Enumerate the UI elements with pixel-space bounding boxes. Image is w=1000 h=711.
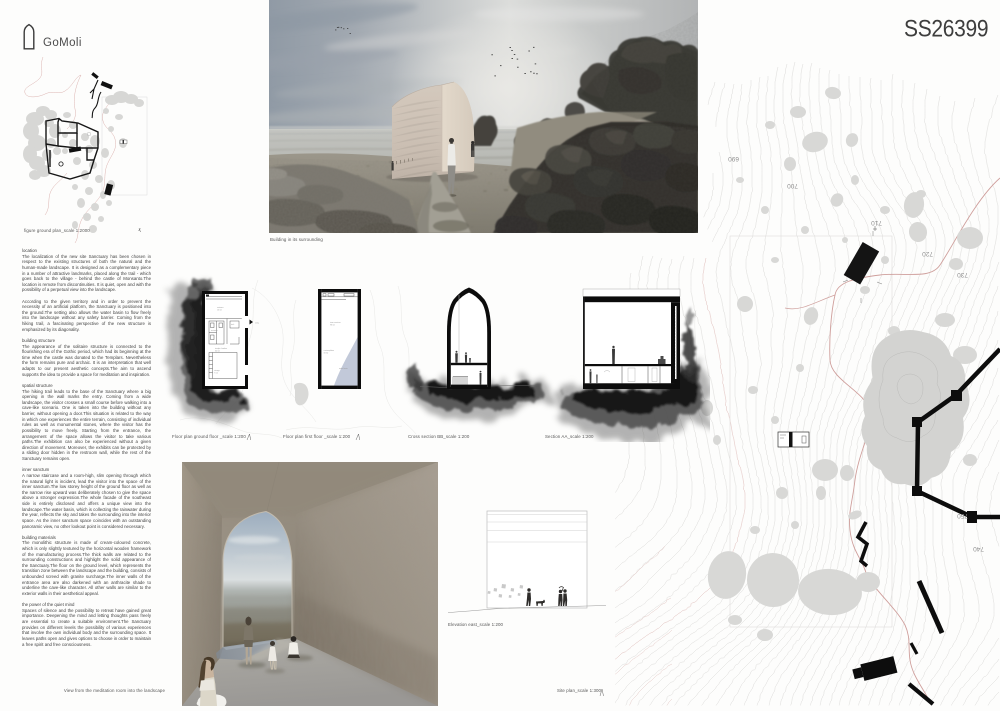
svg-text:740: 740 <box>973 545 984 552</box>
svg-text:710: 710 <box>871 219 882 226</box>
svg-text:entry: entry <box>255 322 259 325</box>
svg-text:tech: tech <box>231 323 234 326</box>
svg-text:690: 690 <box>728 155 739 162</box>
svg-text:700: 700 <box>787 182 798 189</box>
svg-text:water basin: water basin <box>339 367 348 370</box>
svg-text:restroom: restroom <box>211 329 218 332</box>
svg-text:98 m2: 98 m2 <box>330 325 335 327</box>
svg-text:730: 730 <box>957 271 968 278</box>
svg-text:750: 750 <box>957 512 968 519</box>
svg-text:64 m2: 64 m2 <box>215 351 220 353</box>
svg-text:720: 720 <box>922 250 933 257</box>
svg-text:7 m2: 7 m2 <box>214 373 218 375</box>
svg-text:16 m2: 16 m2 <box>217 310 222 312</box>
svg-text:33 m2: 33 m2 <box>324 353 329 355</box>
